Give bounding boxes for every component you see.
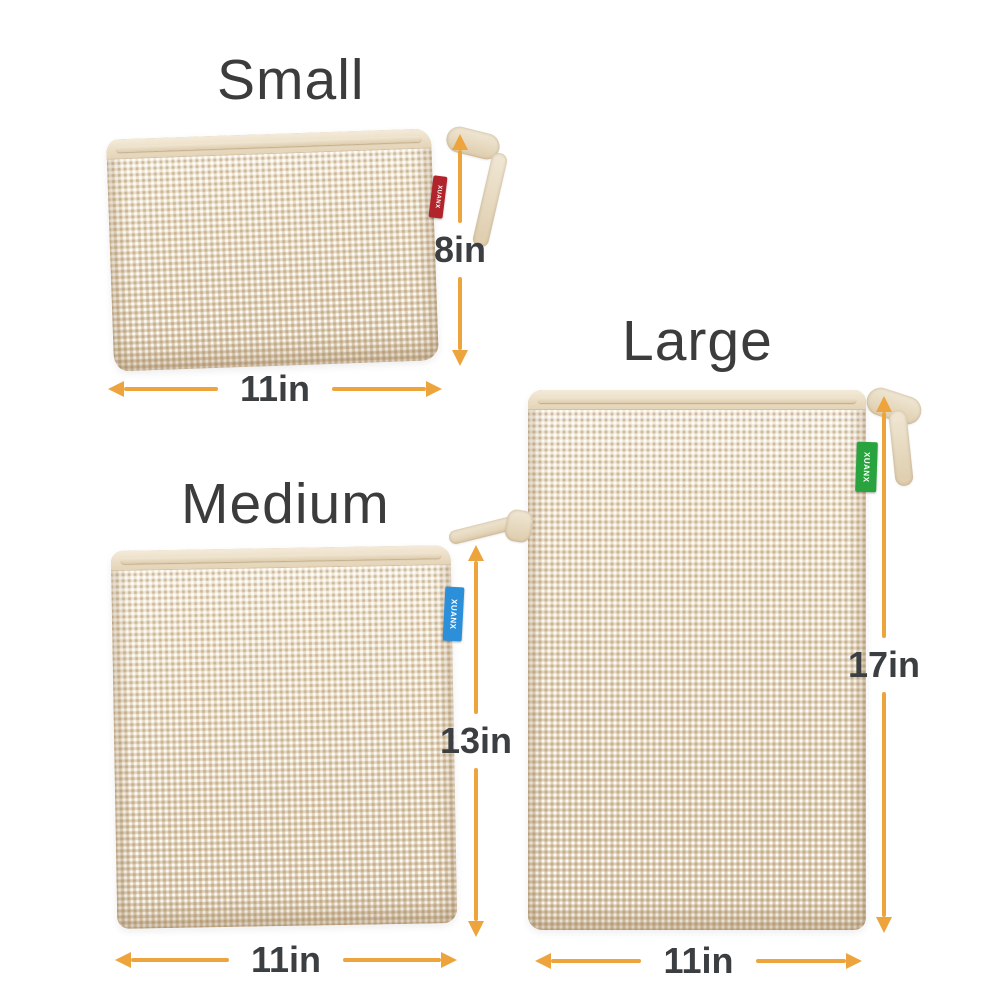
drawstring-channel-medium: [121, 552, 441, 564]
arrow-right-icon: [846, 953, 862, 969]
dimension-line: [882, 692, 886, 918]
dimension-line: [332, 387, 426, 391]
arrow-down-icon: [876, 917, 892, 933]
dimension-line: [124, 387, 218, 391]
dimension-line: [474, 768, 478, 921]
dimension-line: [458, 277, 462, 350]
bag-photo-small: [106, 128, 439, 371]
width-label-large: 11in: [663, 943, 733, 979]
arrow-down-icon: [468, 921, 484, 937]
bag-photo-large: [528, 390, 866, 930]
drawstring-hem-large: [528, 390, 866, 410]
arrow-right-icon: [441, 952, 457, 968]
arrow-left-icon: [108, 381, 124, 397]
arrow-left-icon: [535, 953, 551, 969]
arrow-down-icon: [452, 350, 468, 366]
arrow-up-icon: [452, 134, 468, 150]
width-dimension-small: 11in: [108, 369, 442, 409]
height-label-small: 8in: [434, 232, 486, 268]
width-dimension-medium: 11in: [115, 940, 457, 980]
height-label-large: 17in: [848, 647, 920, 683]
size-chart: Small XUANX 8in 11in Medium XUANX 13in: [0, 0, 1000, 1000]
dimension-line: [458, 150, 462, 223]
arrow-left-icon: [115, 952, 131, 968]
arrow-up-icon: [876, 396, 892, 412]
height-dimension-medium: 13in: [441, 545, 511, 937]
dimension-line: [551, 959, 641, 963]
width-label-small: 11in: [240, 371, 310, 407]
width-label-medium: 11in: [251, 942, 321, 978]
arrow-up-icon: [468, 545, 484, 561]
bag-photo-medium: [111, 545, 458, 929]
dimension-line: [131, 958, 229, 962]
dimension-line: [343, 958, 441, 962]
dimension-line: [882, 412, 886, 638]
drawstring-channel-small: [116, 135, 421, 152]
drawstring-channel-large: [538, 397, 856, 403]
size-title-small: Small: [217, 52, 365, 109]
height-label-medium: 13in: [440, 723, 512, 759]
drawstring-hem-small: [106, 128, 432, 159]
size-title-large: Large: [622, 313, 773, 370]
size-title-medium: Medium: [181, 476, 390, 533]
height-dimension-large: 17in: [849, 396, 919, 933]
dimension-line: [756, 959, 846, 963]
dimension-line: [474, 561, 478, 714]
arrow-right-icon: [426, 381, 442, 397]
drawstring-hem-medium: [111, 545, 451, 571]
width-dimension-large: 11in: [535, 941, 862, 981]
height-dimension-small: 8in: [426, 134, 494, 366]
